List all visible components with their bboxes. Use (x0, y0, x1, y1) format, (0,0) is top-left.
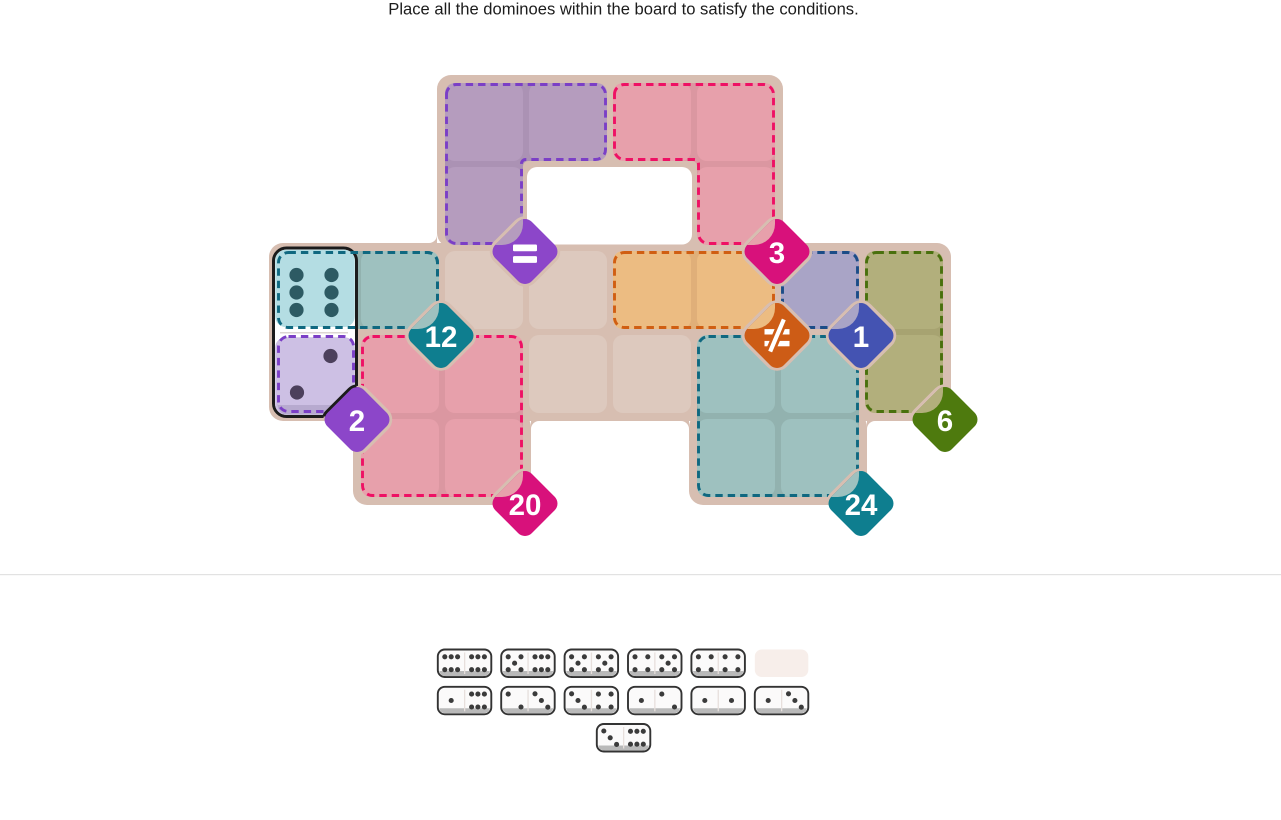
svg-text:24: 24 (845, 489, 878, 522)
svg-text:20: 20 (509, 489, 542, 522)
svg-text:1: 1 (853, 321, 869, 354)
svg-text:12: 12 (425, 321, 458, 354)
svg-text:3: 3 (769, 237, 785, 270)
svg-text:6: 6 (937, 405, 953, 438)
svg-text:2: 2 (349, 405, 365, 438)
svg-text:Place all the dominoes within: Place all the dominoes within the board … (388, 0, 858, 19)
